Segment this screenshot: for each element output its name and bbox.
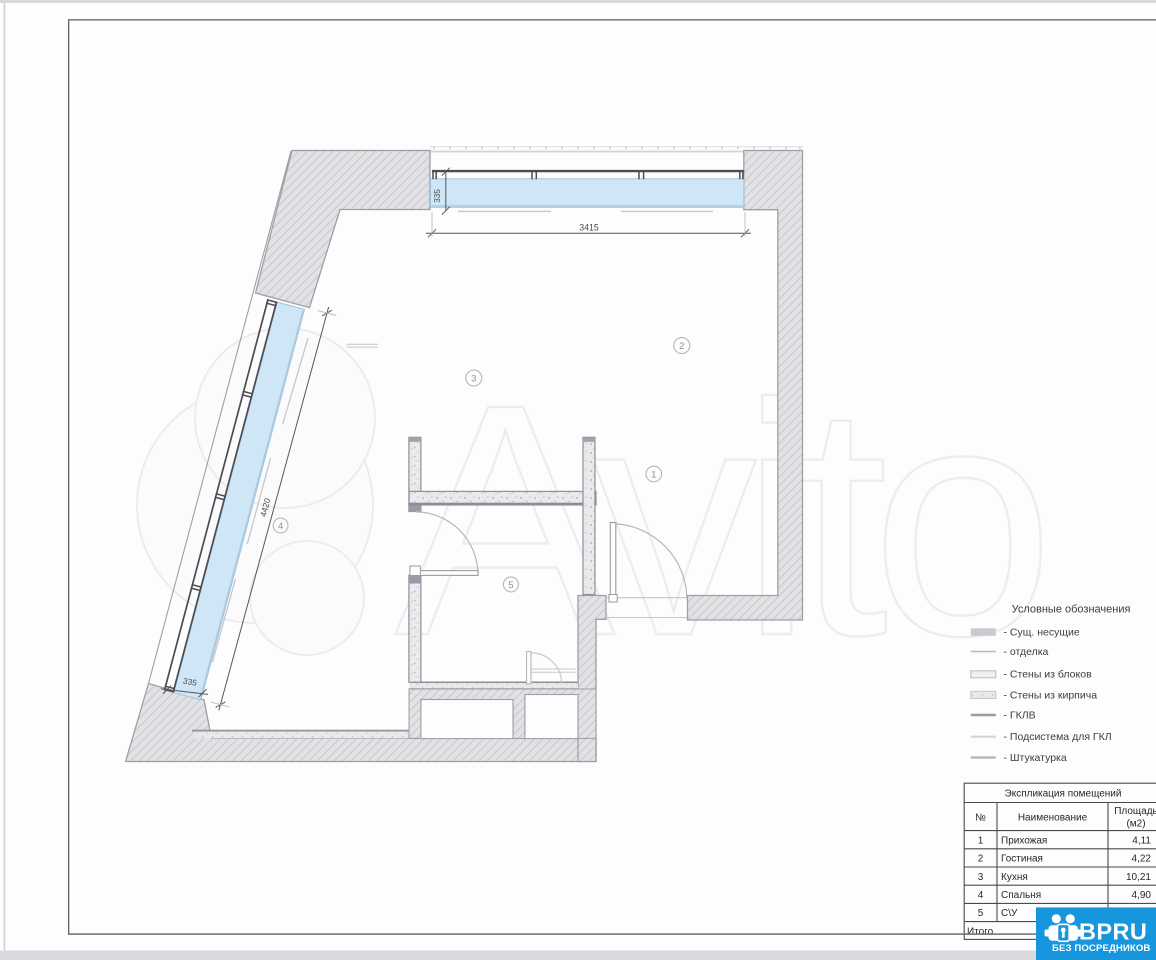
svg-text:BPRU: BPRU bbox=[1079, 919, 1147, 945]
svg-text:Спальня: Спальня bbox=[1001, 890, 1041, 901]
svg-text:№: № bbox=[975, 812, 986, 823]
svg-text:Итого: Итого bbox=[967, 926, 994, 937]
svg-text:Экспликация помещений: Экспликация помещений bbox=[1005, 789, 1122, 800]
svg-text:4,11: 4,11 bbox=[1132, 835, 1151, 846]
svg-text:С\У: С\У bbox=[1001, 908, 1018, 919]
svg-text:- Стены из кирпича: - Стены из кирпича bbox=[1004, 690, 1098, 702]
svg-text:4: 4 bbox=[278, 521, 283, 532]
svg-text:- отделка: - отделка bbox=[1004, 646, 1049, 658]
svg-text:4,22: 4,22 bbox=[1132, 854, 1152, 865]
svg-text:(м2): (м2) bbox=[1126, 818, 1145, 829]
svg-text:1: 1 bbox=[978, 835, 984, 846]
svg-text:- Сущ. несущие: - Сущ. несущие bbox=[1004, 627, 1080, 639]
svg-text:- Подсистема для ГКЛ: - Подсистема для ГКЛ bbox=[1004, 731, 1112, 743]
svg-text:Кухня: Кухня bbox=[1001, 872, 1028, 883]
svg-text:- Стены из блоков: - Стены из блоков bbox=[1004, 669, 1093, 681]
svg-text:Площадь: Площадь bbox=[1114, 806, 1156, 817]
svg-text:4,90: 4,90 bbox=[1132, 890, 1152, 901]
svg-text:Наименование: Наименование bbox=[1018, 812, 1088, 823]
svg-text:2: 2 bbox=[978, 854, 984, 865]
svg-text:БЕЗ ПОСРЕДНИКОВ: БЕЗ ПОСРЕДНИКОВ bbox=[1052, 943, 1150, 954]
svg-text:1: 1 bbox=[651, 469, 656, 480]
svg-text:- Штукатурка: - Штукатурка bbox=[1004, 752, 1067, 764]
svg-text:- ГКЛВ: - ГКЛВ bbox=[1004, 710, 1036, 722]
svg-text:Прихожая: Прихожая bbox=[1001, 835, 1047, 846]
svg-text:5: 5 bbox=[508, 580, 513, 591]
svg-text:335: 335 bbox=[432, 189, 442, 203]
svg-text:3: 3 bbox=[471, 373, 476, 384]
svg-text:10,21: 10,21 bbox=[1126, 872, 1151, 883]
svg-text:Гостиная: Гостиная bbox=[1001, 854, 1043, 865]
svg-text:Avito: Avito bbox=[395, 335, 1041, 704]
svg-text:2: 2 bbox=[679, 341, 684, 352]
svg-text:3415: 3415 bbox=[579, 223, 599, 233]
svg-text:5: 5 bbox=[978, 908, 984, 919]
svg-text:3: 3 bbox=[978, 872, 984, 883]
svg-text:4: 4 bbox=[978, 890, 984, 901]
svg-text:Условные обозначения: Условные обозначения bbox=[1012, 604, 1131, 616]
